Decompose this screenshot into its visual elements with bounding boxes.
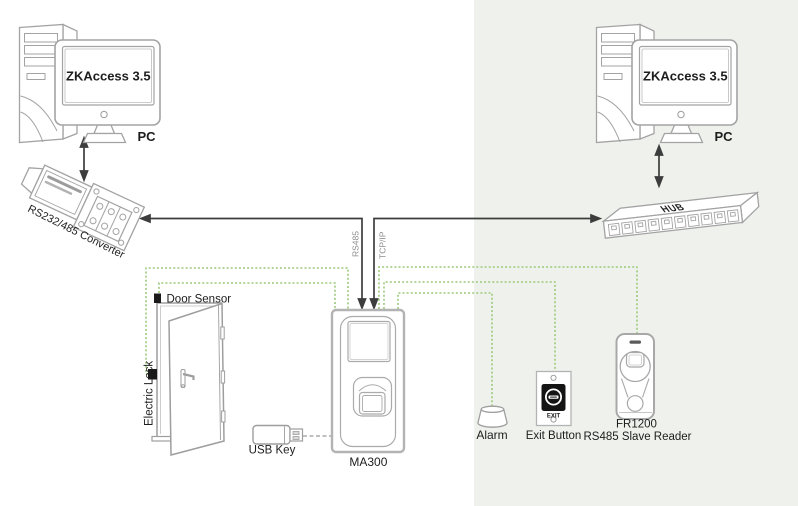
alarm-icon	[478, 406, 507, 427]
diagram-canvas: RS485 TCP/IP ZKAccess 3.5 PC	[0, 0, 798, 506]
alarm-label: Alarm	[476, 428, 507, 442]
fr1200-icon	[617, 334, 655, 419]
pc-left	[20, 25, 161, 143]
exit-button-text: EXIT	[547, 414, 561, 420]
tcpip-link-label: TCP/IP	[378, 231, 388, 259]
door-sensor-label: Door Sensor	[167, 294, 232, 306]
pc-left-label: PC	[137, 129, 156, 144]
rs485-link-label: RS485	[351, 231, 361, 257]
pc-right-screen-label: ZKAccess 3.5	[643, 69, 728, 84]
fr1200-sublabel: RS485 Slave Reader	[583, 431, 691, 443]
pc-left-screen-label: ZKAccess 3.5	[66, 69, 151, 84]
door-sensor-icon	[154, 294, 161, 304]
pc-right-label: PC	[714, 129, 733, 144]
pc-right	[597, 25, 738, 143]
exit-button-label: Exit Button	[526, 430, 582, 442]
usb-key-label: USB Key	[249, 445, 296, 457]
fr1200-label: FR1200	[616, 419, 657, 431]
exit-button-icon: EXIT	[537, 372, 572, 426]
electric-lock-label: Electric Lock	[144, 361, 156, 426]
ma300-icon	[332, 310, 404, 452]
wiring-diagram: RS485 TCP/IP ZKAccess 3.5 PC	[0, 0, 798, 506]
ma300-label: MA300	[349, 455, 387, 469]
